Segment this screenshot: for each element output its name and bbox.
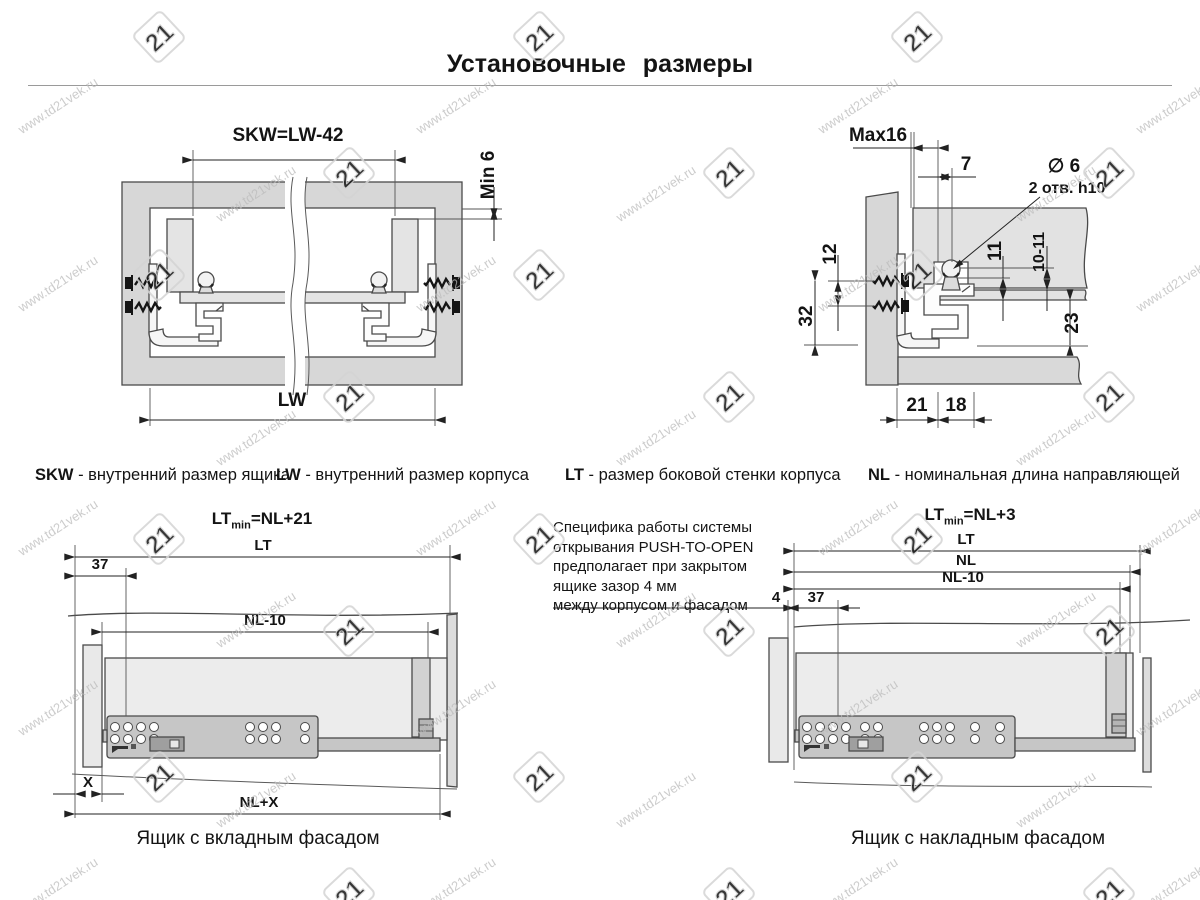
dim-lt-label: LT [957,531,974,548]
definition-term: SKW [35,466,74,484]
dim-nl10-label: NL-10 [942,569,984,586]
formula-rest: =NL+21 [251,509,312,528]
page: SKW=LW-42 Min 6 LW [0,0,1200,900]
drawing-cabinet-section: SKW=LW-42 Min 6 LW [122,125,502,426]
dim-23-label: 23 [1062,312,1083,333]
facade-panel [769,638,788,762]
slide-flange [897,254,905,336]
rail-bar [1015,738,1135,751]
push-to-open-note: Специфика работы системы открывания PUSH… [553,518,803,616]
dim-37-label: 37 [808,589,825,606]
dim-10-11-label: 10-11 [1031,232,1048,272]
definition-desc: - номинальная длина направляющей [890,466,1180,484]
dim-7-label: 7 [961,154,972,175]
dim-nl10-label: NL-10 [244,612,286,629]
rail-bar [318,738,440,751]
formula-inset: LTmin=NL+21 [150,509,374,531]
drawing-inset-facade: LT 37 NL-10 X NL+X [53,537,458,820]
dim-diameter-label: ∅ 6 [1048,156,1080,177]
note-line: предполагает при закрытом [553,557,803,577]
formula-base: LT [924,505,944,524]
formula-rest: =NL+3 [964,505,1016,524]
formula-base: LT [212,509,232,528]
dim-nlx-label: NL+X [240,794,279,811]
note-line: открывания PUSH-TO-OPEN [553,538,803,558]
note-line: между корпусом и фасадом [553,596,803,616]
dim-skw-label: SKW=LW-42 [233,125,344,146]
drawer-wall-right [392,219,418,292]
dim-21-label: 21 [906,395,928,416]
dim-12-label: 12 [820,243,841,264]
definition-desc: - внутренний размер ящика [74,466,290,484]
note-line: ящике зазор 4 мм [553,577,803,597]
dim-lw-label: LW [278,390,307,411]
drawer-wall-left [167,219,193,292]
rail-clip [1112,714,1126,733]
cabinet-side-strip [447,614,457,787]
facade-panel [83,645,102,767]
cabinet-side-panel [866,192,898,385]
dim-32-label: 32 [796,305,817,326]
dim-18-label: 18 [945,395,966,416]
cabinet-bottom-panel [898,357,1081,384]
note-line: Специфика работы системы [553,518,803,538]
rail-clip [419,719,433,738]
caption-overlay-facade: Ящик с накладным фасадом [818,828,1138,850]
dim-11-label: 11 [985,241,1006,262]
caption-inset-facade: Ящик с вкладным фасадом [108,828,408,850]
cabinet-side-strip [1143,658,1151,772]
slide-hook-profile [924,284,974,338]
formula-sub: min [231,519,251,531]
dim-37-label: 37 [92,556,109,573]
formula-sub: min [944,515,964,527]
drawing-mounting-detail: Max16 7 ∅ 6 2 отв. h10 12 32 11 [796,125,1106,428]
definition-skw: SKW - внутренний размер ящика [35,466,290,485]
dim-lt-label: LT [254,537,271,554]
title-rule [28,85,1172,86]
definition-nl: NL - номинальная длина направляющей [868,466,1180,485]
definition-term: LT [565,466,584,484]
definition-lt: LT - размер боковой стенки корпуса [565,466,841,485]
definition-term: NL [868,466,890,484]
definition-term: LW [276,466,301,484]
dim-max16-label: Max16 [849,125,907,146]
definition-desc: - внутренний размер корпуса [301,466,529,484]
diagram-canvas: SKW=LW-42 Min 6 LW [0,0,1200,900]
dim-holes-label: 2 отв. h10 [1029,180,1106,197]
definition-lw: LW - внутренний размер корпуса [276,466,529,485]
dim-nl-label: NL [956,552,976,569]
formula-overlay: LTmin=NL+3 [858,505,1082,527]
cabinet-break-line [794,620,1190,627]
dim-min6-label: Min 6 [478,151,499,200]
dim-x-label: X [83,774,93,791]
page-title: Установочные размеры [0,50,1200,79]
definition-desc: - размер боковой стенки корпуса [584,466,841,484]
